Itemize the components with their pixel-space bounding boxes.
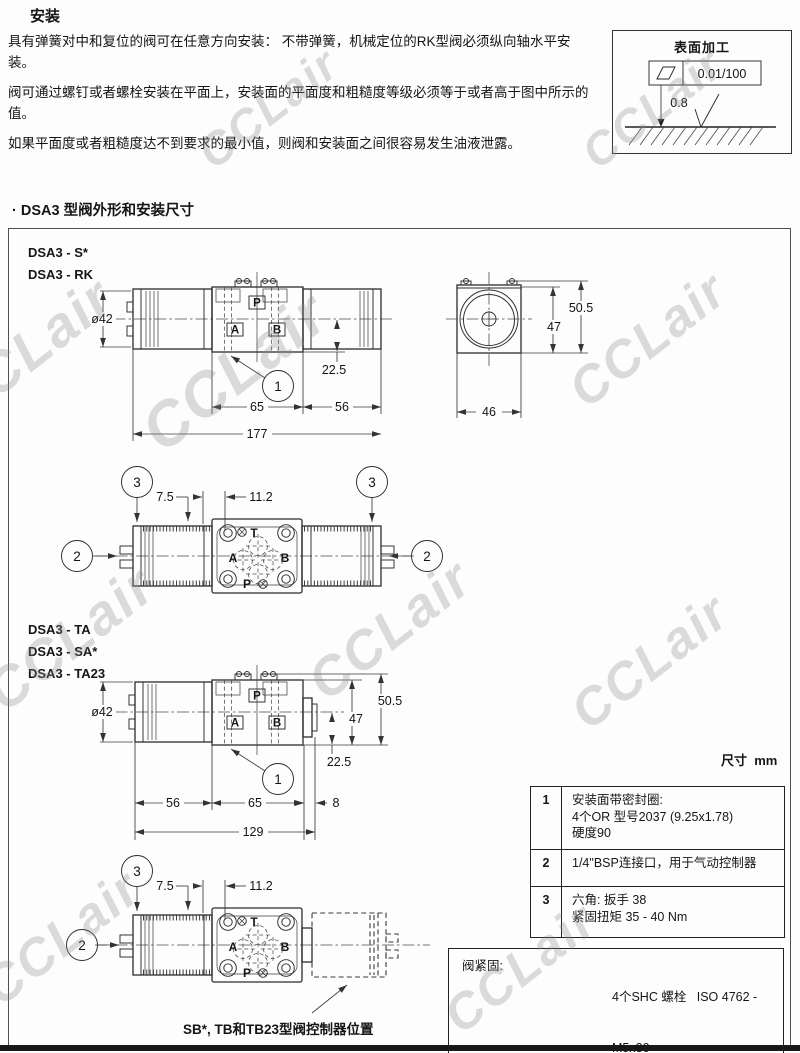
note-number: 2 xyxy=(531,850,562,886)
note-line: 紧固扭矩 35 - 40 Nm xyxy=(572,909,778,926)
hatching xyxy=(629,127,763,145)
roughness-value: 0.8 xyxy=(670,96,687,110)
table-row: 阀紧固: 4个SHC 螺栓 ISO 4762 - M5x30 xyxy=(449,949,783,1053)
document-page: 安装 具有弹簧对中和复位的阀可在任意方向安装： 不带弹簧，机械定位的RK型阀必须… xyxy=(0,0,800,1053)
table-row: 2 1/4"BSP连接口，用于气动控制器 xyxy=(531,850,784,887)
model-label-dsa3-rk: DSA3 - RK xyxy=(28,267,93,282)
note-line: 1/4"BSP连接口，用于气动控制器 xyxy=(572,855,778,872)
model-label-dsa3-ta: DSA3 - TA xyxy=(28,622,91,637)
note-line: 硬度90 xyxy=(572,825,778,842)
controller-position-note: SB*, TB和TB23型阀控制器位置 xyxy=(183,1018,374,1038)
flatness-symbol-icon xyxy=(657,67,675,79)
surface-finish-box: 表面加工 0.01/100 0.8 xyxy=(612,30,792,154)
note-line: 安装面带密封圈: xyxy=(572,792,778,809)
fastening-spec-table: 阀紧固: 4个SHC 螺栓 ISO 4762 - M5x30 紧固扭矩: 5 N… xyxy=(448,948,784,1053)
spec-value-line: 4个SHC 螺栓 ISO 4762 - xyxy=(612,989,779,1006)
model-label-dsa3-sa: DSA3 - SA* xyxy=(28,644,97,659)
page-title: 安装 xyxy=(30,5,60,26)
intro-paragraphs: 具有弹簧对中和复位的阀可在任意方向安装： 不带弹簧，机械定位的RK型阀必须纵向轴… xyxy=(8,31,596,163)
unit-note: 尺寸 mm xyxy=(721,750,777,769)
note-line: 六角: 扳手 38 xyxy=(572,892,778,909)
table-row: 1 安装面带密封圈: 4个OR 型号2037 (9.25x1.78) 硬度90 xyxy=(531,787,784,850)
surface-finish-diagram: 0.01/100 0.8 xyxy=(613,53,788,153)
model-label-dsa3-ta23: DSA3 - TA23 xyxy=(28,666,105,681)
paragraph-3: 如果平面度或者粗糙度达不到要求的最小值，则阀和安装面之间很容易发生油液泄露。 xyxy=(8,133,596,154)
paragraph-2: 阀可通过螺钉或者螺栓安装在平面上，安装面的平面度和粗糙度等级必须等于或者高于图中… xyxy=(8,82,596,124)
roughness-symbol-icon xyxy=(695,94,719,127)
notes-table: 1 安装面带密封圈: 4个OR 型号2037 (9.25x1.78) 硬度90 … xyxy=(530,786,785,938)
paragraph-1: 具有弹簧对中和复位的阀可在任意方向安装： 不带弹簧，机械定位的RK型阀必须纵向轴… xyxy=(8,31,596,73)
model-label-dsa3-s: DSA3 - S* xyxy=(28,245,88,260)
flatness-value: 0.01/100 xyxy=(698,67,747,81)
leader-arrow-icon xyxy=(658,119,665,127)
note-number: 1 xyxy=(531,787,562,849)
note-line: 4个OR 型号2037 (9.25x1.78) xyxy=(572,809,778,826)
section-heading: · DSA3 型阀外形和安装尺寸 xyxy=(12,199,194,220)
page-footer-rule xyxy=(0,1045,800,1051)
spec-label: 阀紧固: xyxy=(449,949,612,1053)
table-row: 3 六角: 扳手 38 紧固扭矩 35 - 40 Nm xyxy=(531,887,784,937)
note-number: 3 xyxy=(531,887,562,937)
